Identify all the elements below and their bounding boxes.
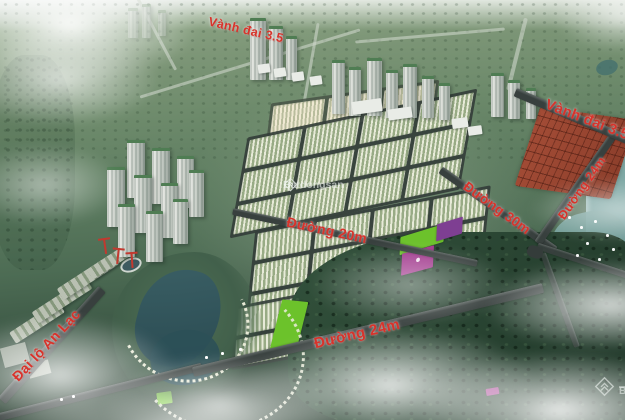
high-rise-tower — [332, 60, 345, 114]
low-building — [309, 75, 322, 86]
watermark-corner-textcol: Ba — [619, 386, 625, 388]
low-building — [291, 71, 304, 82]
watermark-center: Batdongsan — [283, 177, 298, 192]
high-rise-tower — [422, 76, 434, 118]
aerial-masterplan-scene: Vành đai 3.5 Vành đai 3.5 Đường 24m Đườn… — [0, 0, 625, 420]
cloud-mist — [300, 240, 520, 330]
high-rise-tower — [508, 80, 520, 119]
high-rise-tower — [173, 199, 188, 244]
high-rise-tower — [491, 73, 504, 117]
watermark-center-text: Batdongsan — [283, 179, 344, 191]
watermark-corner: Ba — [594, 376, 625, 397]
high-rise-tower — [146, 211, 163, 262]
low-building — [467, 125, 482, 136]
low-building — [273, 67, 286, 78]
high-rise-tower — [439, 83, 450, 120]
batdongsan-diamond-logo-icon — [594, 376, 615, 397]
low-building — [257, 63, 270, 74]
watermark-corner-text: Ba — [619, 386, 625, 397]
high-rise-tower — [189, 170, 204, 217]
